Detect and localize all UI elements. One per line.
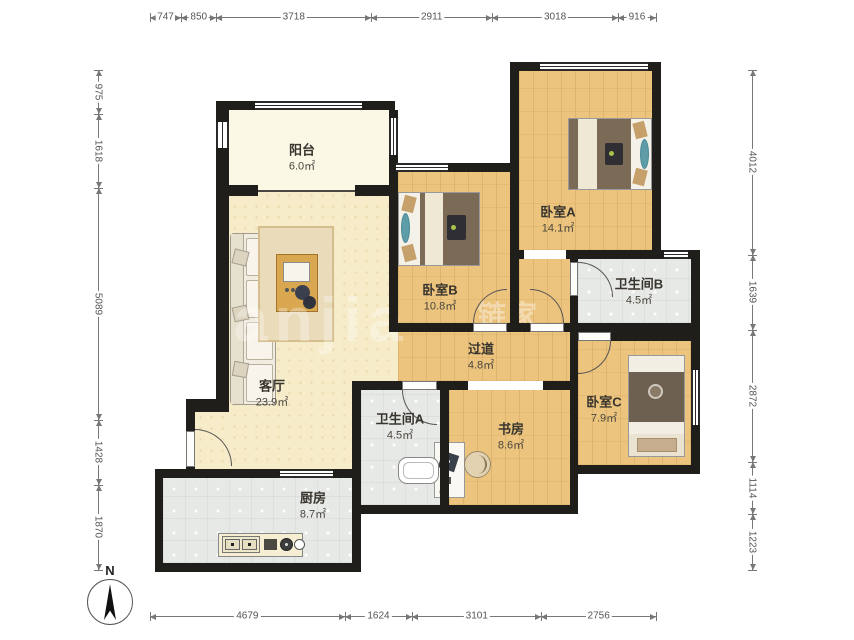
window: [664, 250, 688, 259]
room-label-balcony: 阳台 6.0㎡: [289, 142, 315, 173]
tray-dot: [609, 151, 614, 156]
room-label-living: 客厅 23.9㎡: [256, 378, 288, 409]
dimension-segment-top: 916: [618, 17, 656, 18]
wall-segment: [226, 185, 258, 196]
dimension-tick: [94, 570, 103, 571]
dimension-tick: [748, 462, 757, 463]
wall-segment: [570, 465, 700, 474]
kettle: [303, 296, 316, 309]
bed-sheet-stripe: [578, 119, 597, 189]
dimension-tick: [492, 13, 493, 22]
wall-segment: [570, 332, 578, 514]
balcony-separator-line: [258, 190, 355, 192]
room-label-bedroomA: 卧室A 14.1㎡: [540, 204, 575, 235]
room-label-hallway: 过道 4.8㎡: [468, 341, 494, 372]
dimension-tick: [181, 13, 182, 22]
bathtub: [398, 457, 439, 484]
room-label-bathroomA: 卫生间A 4.5㎡: [376, 411, 424, 442]
dimension-segment-top: 747: [150, 17, 181, 18]
bed-pillow-teal: [401, 213, 410, 243]
dimension-segment-bottom: 2756: [541, 616, 656, 617]
wall-segment: [155, 563, 361, 572]
dimension-tick: [656, 612, 657, 621]
door-leaf: [186, 431, 195, 467]
room-label-bathroomB: 卫生间B 4.5㎡: [615, 276, 663, 307]
dimension-tick: [748, 330, 757, 331]
wall-segment: [389, 323, 473, 332]
bed-tray: [447, 215, 466, 240]
sink-dot: [231, 543, 234, 546]
dimension-segment-right: 1114: [752, 462, 753, 513]
dimension-segment-left: 1870: [98, 485, 99, 570]
bed-bedroomA: [568, 118, 652, 190]
wall-segment: [155, 469, 163, 572]
dimension-tick: [94, 70, 103, 71]
dimension-label: 850: [188, 12, 209, 23]
room-label-bedroomB: 卧室B 10.8㎡: [422, 282, 457, 313]
dimension-tick: [371, 13, 372, 22]
room-name: 厨房: [300, 490, 326, 507]
window: [389, 118, 398, 155]
chair-back: [468, 455, 487, 474]
tray-dot: [451, 225, 456, 230]
dimension-tick: [94, 420, 103, 421]
dimension-tick: [150, 612, 151, 621]
dimension-segment-bottom: 4679: [150, 616, 345, 617]
dimension-label: 3018: [542, 12, 568, 23]
dimension-segment-top: 3718: [216, 17, 371, 18]
dimension-segment-left: 5089: [98, 188, 99, 420]
window: [255, 101, 362, 110]
window: [216, 122, 229, 148]
wall-segment: [216, 192, 229, 412]
room-area: 6.0㎡: [289, 159, 315, 173]
bed-pillow: [401, 195, 417, 213]
room-name: 阳台: [289, 142, 315, 159]
dimension-label: 1223: [747, 529, 758, 555]
dimension-tick: [541, 612, 542, 621]
dimension-label: 1114: [747, 476, 758, 501]
room-area: 7.9㎡: [586, 411, 621, 425]
door-leaf: [402, 381, 437, 390]
room-area: 8.6㎡: [498, 438, 524, 452]
wall-segment: [688, 250, 700, 259]
bed-pillow: [401, 244, 417, 262]
bathtub-inner: [403, 462, 434, 479]
dimension-segment-top: 2911: [371, 17, 492, 18]
compass: N: [82, 563, 138, 625]
window: [396, 163, 448, 172]
sofa-pillow: [232, 305, 250, 323]
kitchen-counter: [218, 533, 303, 557]
north-label: N: [82, 563, 138, 578]
dimension-segment-right: 1639: [752, 255, 753, 330]
dimension-label: 916: [627, 12, 648, 23]
dimension-tick: [412, 612, 413, 621]
dimension-label: 5089: [93, 291, 104, 317]
burner-dot: [285, 543, 288, 546]
table-dot: [291, 288, 295, 292]
room-area: 4.5㎡: [615, 293, 663, 307]
dimension-segment-top: 850: [181, 17, 216, 18]
dimension-segment-left: 975: [98, 70, 99, 114]
wall-segment: [186, 399, 195, 432]
table-dot: [285, 288, 289, 292]
door-leaf: [473, 323, 507, 332]
dimension-segment-left: 1618: [98, 114, 99, 188]
room-area: 14.1㎡: [540, 221, 575, 235]
bed-pillow: [632, 121, 648, 139]
dimension-tick: [656, 13, 657, 22]
dimension-segment-top: 3018: [492, 17, 618, 18]
room-name: 卫生间B: [615, 276, 663, 293]
dimension-label: 1639: [747, 279, 758, 305]
dimension-label: 975: [93, 82, 104, 103]
wall-segment: [564, 323, 700, 332]
dimension-segment-right: 4012: [752, 70, 753, 255]
dimension-label: 3101: [464, 611, 490, 622]
bed-tray: [605, 143, 623, 165]
dimension-tick: [618, 13, 619, 22]
dimension-label: 2911: [419, 12, 445, 23]
dimension-label: 2872: [747, 383, 758, 409]
room-name: 卧室C: [586, 394, 621, 411]
wall-segment: [352, 381, 402, 390]
stove-burner: [280, 538, 293, 551]
bed-pillow: [632, 168, 648, 186]
wall-segment: [510, 250, 524, 259]
room-name: 卧室B: [422, 282, 457, 299]
dimension-tick: [94, 114, 103, 115]
wall-segment: [611, 332, 700, 341]
dimension-label: 3718: [281, 12, 307, 23]
dimension-tick: [94, 188, 103, 189]
dimension-label: 1618: [93, 138, 104, 164]
door-leaf: [530, 323, 564, 332]
dimension-label: 747: [155, 12, 176, 23]
room-area: 4.5㎡: [376, 428, 424, 442]
wall-segment: [510, 62, 519, 332]
dimension-tick: [748, 70, 757, 71]
dimension-tick: [345, 612, 346, 621]
room-name: 卧室A: [540, 204, 575, 221]
dimension-segment-right: 2872: [752, 330, 753, 462]
bed-foot-blanket: [637, 438, 677, 452]
dimension-tick: [748, 570, 757, 571]
wall-segment: [570, 332, 578, 341]
dimension-segment-bottom: 3101: [412, 616, 541, 617]
wall-segment: [652, 62, 661, 259]
table-tray: [283, 262, 310, 282]
wall-segment: [440, 381, 449, 514]
wall-segment: [352, 381, 361, 572]
sink-dot: [248, 543, 251, 546]
room-area: 8.7㎡: [300, 507, 326, 521]
coffee-table: [276, 254, 318, 312]
room-name: 客厅: [256, 378, 288, 395]
wall-segment: [507, 323, 530, 332]
counter-item: [264, 539, 277, 550]
room-label-bedroomC: 卧室C 7.9㎡: [586, 394, 621, 425]
room-label-kitchen: 厨房 8.7㎡: [300, 490, 326, 521]
door-leaf: [578, 332, 611, 341]
dimension-label: 1870: [93, 514, 104, 540]
compass-circle: [87, 579, 133, 625]
sliding-door: [280, 469, 333, 478]
floor-plan-canvas: lianjia 链家: [0, 0, 854, 640]
wall-segment: [355, 185, 389, 196]
wall-segment: [352, 505, 578, 514]
wall-segment: [691, 250, 700, 474]
dimension-label: 1624: [365, 611, 391, 622]
dimension-segment-right: 1223: [752, 514, 753, 570]
sink: [222, 536, 260, 553]
stove-dial: [294, 539, 305, 550]
desk-chair: [464, 451, 491, 478]
dimension-segment-bottom: 1624: [345, 616, 413, 617]
dimension-label: 1428: [93, 439, 104, 465]
dimension-tick: [748, 255, 757, 256]
dimension-tick: [748, 514, 757, 515]
dimension-segment-left: 1428: [98, 420, 99, 485]
dimension-label: 4012: [747, 149, 758, 175]
door-leaf: [570, 262, 578, 296]
room-area: 4.8㎡: [468, 358, 494, 372]
window: [540, 62, 648, 71]
bed-sheet-stripe: [425, 193, 443, 265]
dimension-label: 2756: [586, 611, 612, 622]
dimension-tick: [94, 485, 103, 486]
bed-bedroomB: [398, 192, 480, 266]
wall-segment: [566, 250, 664, 259]
north-arrow-icon: [100, 584, 120, 620]
room-name: 过道: [468, 341, 494, 358]
dimension-tick: [150, 13, 151, 22]
room-area: 23.9㎡: [256, 395, 288, 409]
bed-bedroomC: [628, 355, 685, 457]
bed-deco-circle: [648, 384, 663, 399]
dimension-tick: [216, 13, 217, 22]
dimension-label: 4679: [234, 611, 260, 622]
wall-segment: [543, 381, 578, 390]
wall-segment: [437, 381, 468, 390]
room-area: 10.8㎡: [422, 299, 457, 313]
sofa-pillow: [232, 361, 249, 378]
room-name: 卫生间A: [376, 411, 424, 428]
room-name: 书房: [498, 421, 524, 438]
bed-pillow-teal: [640, 139, 649, 169]
room-label-study: 书房 8.6㎡: [498, 421, 524, 452]
window: [691, 370, 700, 425]
